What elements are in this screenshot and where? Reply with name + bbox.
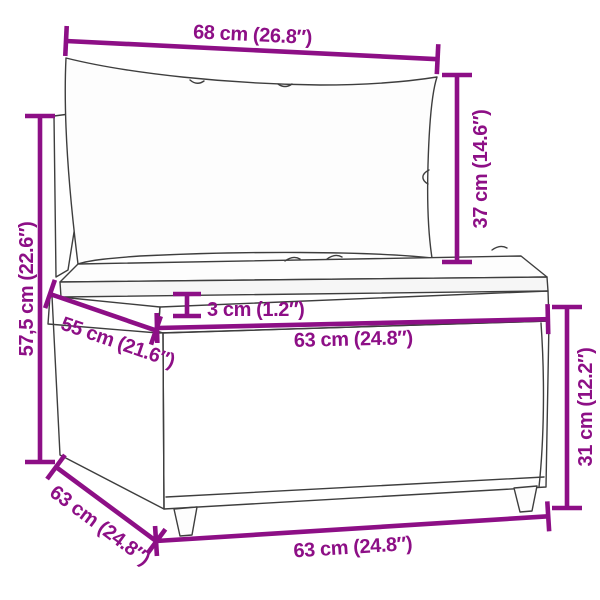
base-bottom-trim <box>166 477 544 497</box>
dim-label-backrest-height: 37 cm (14.6″) <box>470 110 492 229</box>
dim-tick-start <box>47 455 65 479</box>
diagram-canvas: 68 cm (26.8″) 37 cm (14.6″) 57,5 cm (22.… <box>0 0 600 600</box>
dim-bottom-width: 63 cm (24.8″) <box>155 501 550 571</box>
dim-cushion-thickness: 3 cm (1.2″) <box>173 294 304 321</box>
back-cushion <box>65 58 437 264</box>
dim-tick-start <box>157 313 158 343</box>
dim-label-top-width: 68 cm (26.8″) <box>193 21 313 49</box>
dim-label-cushion-thickness: 3 cm (1.2″) <box>207 299 304 321</box>
seat-cushion-crease <box>492 246 507 250</box>
dim-tick-end <box>437 44 438 74</box>
dim-label-seat-width: 63 cm (24.8″) <box>294 327 413 352</box>
leg-front-right <box>514 486 537 512</box>
base-corner-line <box>539 323 543 487</box>
dim-tick-end <box>548 304 549 334</box>
dim-backrest-height: 37 cm (14.6″) <box>442 75 492 262</box>
leg-front-left <box>174 507 197 536</box>
sofa-dimension-diagram: 68 cm (26.8″) 37 cm (14.6″) 57,5 cm (22.… <box>0 0 600 600</box>
dim-tick-end <box>547 501 549 531</box>
dim-tick-start <box>155 526 157 556</box>
dim-bottom-depth: 63 cm (24.8″) <box>37 455 169 570</box>
dim-top-width: 68 cm (26.8″) <box>65 15 439 74</box>
dim-total-height: 57,5 cm (22.6″) <box>16 116 55 462</box>
dim-tick-start <box>65 26 66 56</box>
dim-label-total-height: 57,5 cm (22.6″) <box>16 222 38 357</box>
seat-cushion-crease <box>327 255 342 259</box>
dim-base-height: 31 cm (12.2″) <box>552 307 597 508</box>
dim-label-base-height: 31 cm (12.2″) <box>575 348 597 467</box>
dim-label-bottom-width: 63 cm (24.8″) <box>293 533 413 562</box>
